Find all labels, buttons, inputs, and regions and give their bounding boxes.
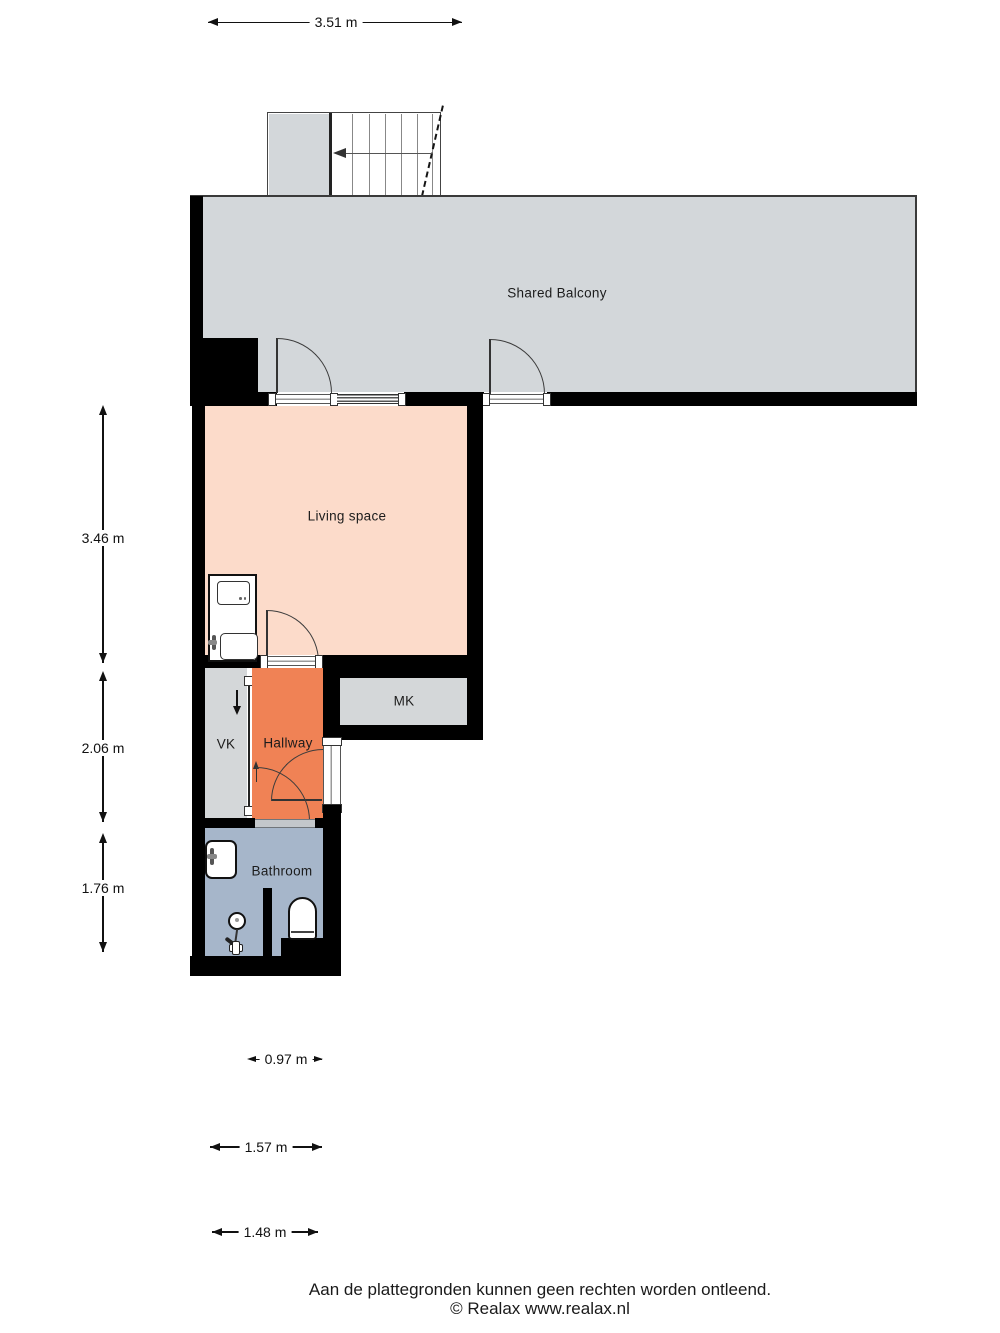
arrow-down-icon xyxy=(99,653,107,663)
living-door-threshold xyxy=(263,656,317,666)
wall-bathroom-left xyxy=(192,818,205,976)
footer-copyright: © Realax www.realax.nl xyxy=(450,1299,630,1319)
arrow-left-icon xyxy=(212,1228,222,1236)
room-label-bathroom: Bathroom xyxy=(252,864,313,879)
arrow-down-icon xyxy=(99,942,107,952)
dim-bottom-label-2: 1.57 m xyxy=(240,1139,293,1155)
arrow-left-icon xyxy=(208,18,218,26)
arrow-right-icon xyxy=(308,1228,318,1236)
door-jamb xyxy=(268,393,276,406)
vk-shaft-arrow-down-icon xyxy=(233,706,241,715)
dim-bottom-label-3: 1.48 m xyxy=(239,1224,292,1240)
wall-balcony-corner xyxy=(190,338,258,392)
stair-tread xyxy=(369,114,370,195)
wall-balcony-left xyxy=(190,196,203,338)
door-jamb xyxy=(322,737,342,746)
dim-bottom-label-1: 0.97 m xyxy=(260,1051,313,1067)
window-jamb xyxy=(398,393,406,406)
stair-direction-line xyxy=(345,153,433,155)
bathroom-partition-wall xyxy=(263,888,272,956)
vk-partition xyxy=(248,680,250,808)
room-label-living-space: Living space xyxy=(308,509,387,524)
bathroom-door-threshold xyxy=(255,819,315,828)
stair-landing xyxy=(269,114,329,198)
arrow-left-icon xyxy=(247,1056,256,1062)
kitchen-sink xyxy=(220,633,258,660)
room-label-mk: MK xyxy=(394,694,415,709)
room-label-shared-balcony: Shared Balcony xyxy=(507,286,607,301)
stair-tread xyxy=(385,114,386,195)
stair-direction-arrow-icon xyxy=(333,148,346,158)
toilet-ledge xyxy=(281,938,323,958)
door-jamb xyxy=(260,655,268,669)
footer-disclaimer: Aan de plattegronden kunnen geen rechten… xyxy=(309,1280,771,1300)
arrow-up-icon xyxy=(99,671,107,681)
door-jamb xyxy=(482,393,490,406)
stair-tread xyxy=(417,114,418,195)
shower-head-dot xyxy=(235,918,239,922)
kitchen-appliance xyxy=(217,581,250,605)
wall-vk-left xyxy=(192,668,205,818)
balcony-door-threshold xyxy=(272,394,334,404)
arrow-up-icon xyxy=(99,833,107,843)
entrance-door-threshold xyxy=(323,743,341,805)
arrow-down-icon xyxy=(99,812,107,822)
room-label-vk: VK xyxy=(217,737,236,752)
toilet-seat-line xyxy=(291,931,314,933)
living-window xyxy=(337,394,399,404)
arrow-right-icon xyxy=(452,18,462,26)
arrow-right-icon xyxy=(314,1056,323,1062)
floor-plan: 3.51 m Shared Balcony Living space xyxy=(0,0,1000,1333)
wall-mk-bottom xyxy=(323,725,483,740)
wall-mk-top xyxy=(340,668,467,678)
dim-top-label: 3.51 m xyxy=(310,14,363,30)
dim-left-label-living: 3.46 m xyxy=(77,530,130,546)
dim-left-label-bathroom: 1.76 m xyxy=(77,880,130,896)
stair-tread xyxy=(401,114,402,195)
shower-sprayer-icon xyxy=(232,941,240,955)
arrow-left-icon xyxy=(210,1143,220,1151)
balcony-door-threshold xyxy=(486,394,545,404)
arrow-right-icon xyxy=(312,1143,322,1151)
wall-bathroom-right xyxy=(323,805,341,976)
stair-tread xyxy=(352,114,353,195)
kitchen-faucet-icon xyxy=(208,640,217,645)
wall-living-left xyxy=(192,392,205,668)
wall-balcony-bottom xyxy=(547,392,917,406)
bathroom-faucet-icon xyxy=(207,854,217,859)
toilet xyxy=(288,897,317,940)
wall-living-right xyxy=(467,392,483,740)
wall-bottom xyxy=(190,956,341,976)
stair-divider xyxy=(329,113,332,196)
balcony-right-edge xyxy=(915,195,917,406)
room-label-hallway: Hallway xyxy=(263,736,312,751)
arrow-up-icon xyxy=(99,405,107,415)
appliance-knob xyxy=(244,597,247,600)
door-jamb xyxy=(315,655,323,669)
dim-left-label-hallway: 2.06 m xyxy=(77,740,130,756)
wall-living-bottom xyxy=(318,655,483,668)
door-jamb xyxy=(543,393,551,406)
appliance-knob xyxy=(239,597,242,600)
